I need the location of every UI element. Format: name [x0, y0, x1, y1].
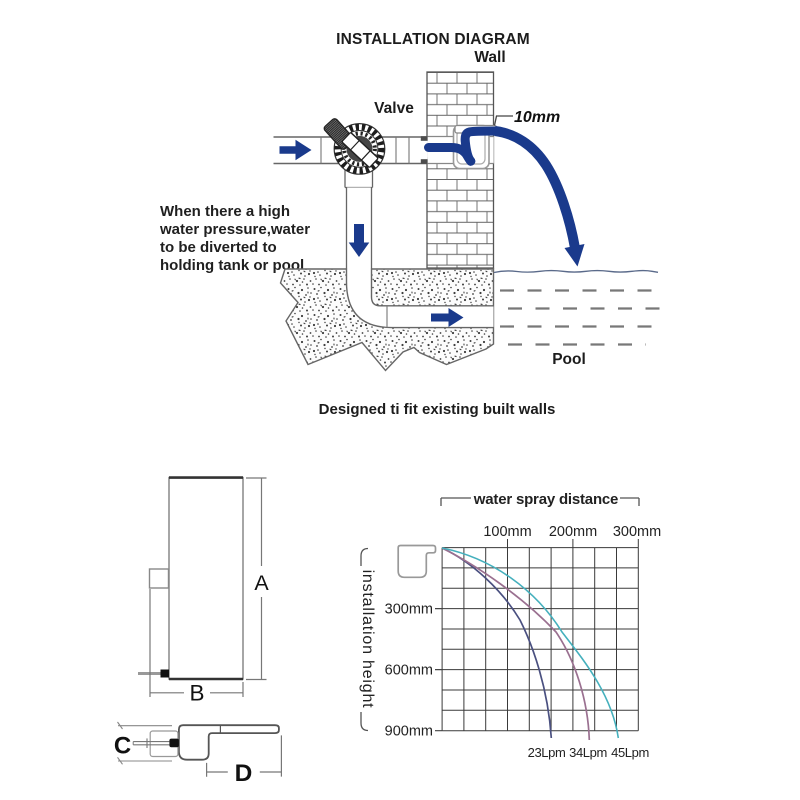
svg-text:Pool: Pool — [552, 351, 586, 368]
svg-text:34Lpm: 34Lpm — [569, 745, 607, 760]
svg-text:10mm: 10mm — [514, 109, 560, 126]
svg-text:C: C — [114, 733, 131, 760]
svg-text:300mm: 300mm — [613, 524, 661, 540]
svg-text:When there a high: When there a high — [160, 203, 290, 220]
svg-text:900mm: 900mm — [385, 724, 433, 740]
svg-text:45Lpm: 45Lpm — [611, 745, 649, 760]
svg-text:23Lpm: 23Lpm — [528, 745, 566, 760]
svg-text:holding tank or pool: holding tank or pool — [160, 257, 304, 274]
svg-text:200mm: 200mm — [549, 524, 597, 540]
svg-text:600mm: 600mm — [385, 663, 433, 679]
svg-text:Wall: Wall — [474, 49, 505, 66]
svg-text:300mm: 300mm — [385, 602, 433, 618]
svg-text:Designed ti fit existing built: Designed ti fit existing built walls — [319, 401, 556, 418]
svg-text:B: B — [189, 681, 204, 706]
svg-text:D: D — [235, 760, 253, 787]
svg-text:INSTALLATION DIAGRAM: INSTALLATION DIAGRAM — [336, 31, 530, 48]
svg-text:Valve: Valve — [374, 100, 414, 117]
svg-text:A: A — [254, 571, 269, 595]
svg-text:water spray distance: water spray distance — [473, 491, 618, 508]
svg-text:installation height: installation height — [359, 570, 376, 709]
svg-text:to be diverted to: to be diverted to — [160, 239, 277, 256]
svg-text:water pressure,water: water pressure,water — [159, 221, 310, 238]
svg-text:100mm: 100mm — [483, 524, 531, 540]
